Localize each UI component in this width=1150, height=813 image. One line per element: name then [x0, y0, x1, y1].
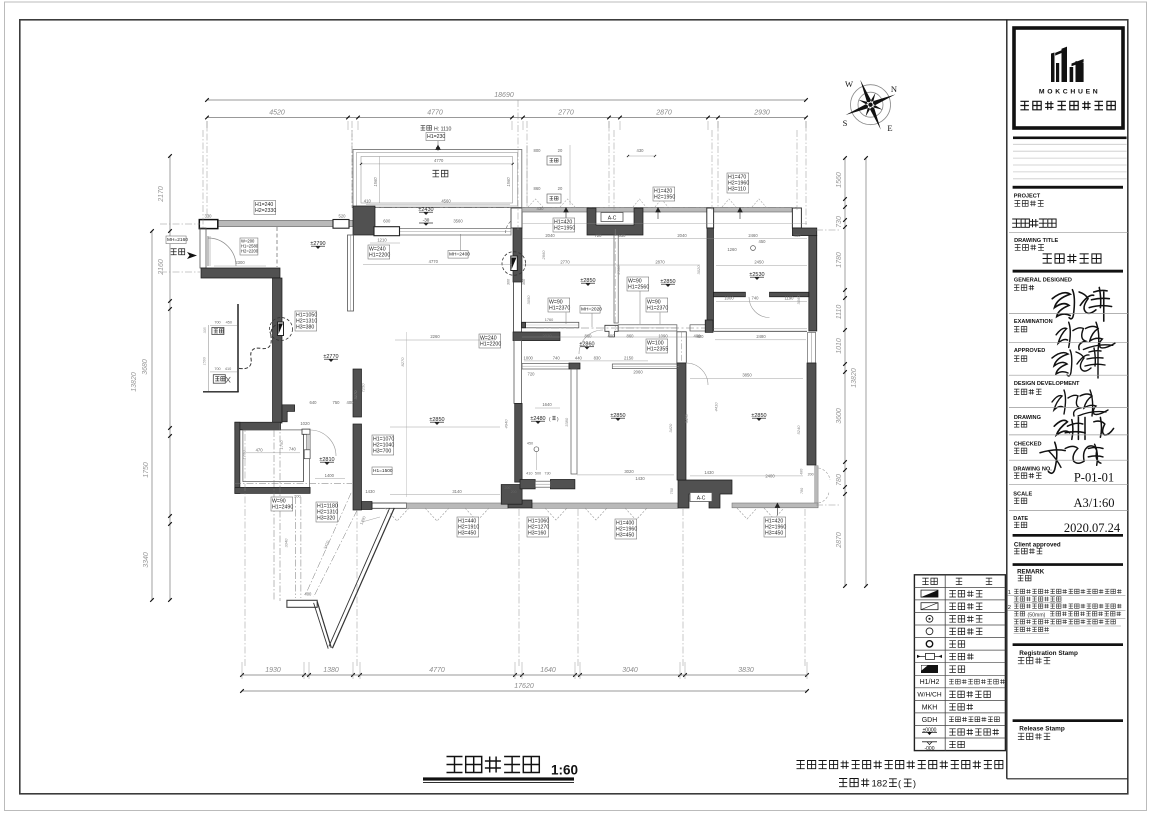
svg-text:2020.07.24: 2020.07.24 — [1064, 521, 1121, 535]
svg-text:Registration Stamp: Registration Stamp — [1019, 650, 1078, 657]
svg-text:SCALE: SCALE — [1013, 492, 1032, 498]
svg-text:H3=110: H3=110 — [728, 187, 746, 193]
svg-text:W/H/CH: W/H/CH — [917, 692, 941, 699]
svg-text:480: 480 — [800, 469, 804, 475]
svg-text:H3=450: H3=450 — [458, 531, 476, 537]
svg-text:3170: 3170 — [353, 390, 358, 400]
svg-text:3600: 3600 — [836, 408, 843, 424]
svg-text:305: 305 — [203, 327, 207, 333]
svg-text:2870: 2870 — [655, 260, 665, 265]
svg-text:2770: 2770 — [560, 260, 570, 265]
svg-text:700: 700 — [214, 321, 220, 325]
svg-text:3050: 3050 — [526, 295, 531, 305]
svg-text:200: 200 — [504, 486, 510, 490]
svg-text:3140: 3140 — [452, 489, 462, 494]
svg-text:EXAMINATION: EXAMINATION — [1014, 319, 1053, 325]
svg-text:20: 20 — [558, 186, 563, 191]
svg-text:3020: 3020 — [624, 469, 634, 474]
svg-text:Release Stamp: Release Stamp — [1019, 726, 1065, 733]
svg-text:740: 740 — [289, 447, 297, 452]
svg-text:H2=1950: H2=1950 — [554, 226, 575, 232]
svg-text:3040: 3040 — [622, 667, 638, 674]
svg-text:H3=320: H3=320 — [317, 516, 335, 522]
svg-text:MH=2160: MH=2160 — [167, 237, 188, 243]
svg-text:18690: 18690 — [494, 92, 514, 99]
svg-text:2: 2 — [1008, 605, 1011, 611]
svg-text:1380: 1380 — [323, 667, 339, 674]
svg-text:450: 450 — [759, 239, 767, 244]
svg-text:3340: 3340 — [284, 538, 289, 548]
svg-text:630: 630 — [619, 233, 627, 238]
svg-text:E: E — [887, 123, 892, 133]
svg-text:1750: 1750 — [279, 440, 284, 450]
svg-text:2160: 2160 — [158, 259, 165, 276]
svg-text:740: 740 — [553, 356, 561, 361]
svg-text:1210: 1210 — [377, 238, 387, 243]
svg-text:200: 200 — [808, 472, 814, 476]
svg-text:4520: 4520 — [269, 110, 285, 117]
svg-text:PROJECT: PROJECT — [1014, 194, 1041, 200]
svg-text:1000: 1000 — [724, 296, 734, 301]
svg-text:4770: 4770 — [427, 110, 443, 117]
svg-text:H2=2330: H2=2330 — [255, 208, 276, 214]
svg-text:300: 300 — [507, 278, 511, 285]
svg-text:H1=2355: H1=2355 — [647, 347, 668, 353]
svg-text:2060: 2060 — [633, 370, 643, 375]
svg-text:430: 430 — [537, 206, 545, 211]
svg-text:MH=2400: MH=2400 — [449, 252, 470, 258]
svg-text:2560: 2560 — [616, 265, 621, 276]
svg-text:DRAWING NO.: DRAWING NO. — [1013, 466, 1052, 472]
svg-text:1430: 1430 — [635, 476, 645, 481]
svg-text:1640: 1640 — [542, 402, 552, 407]
svg-text:2040: 2040 — [677, 233, 687, 238]
svg-text:1560: 1560 — [373, 177, 378, 187]
svg-text:2770: 2770 — [557, 110, 574, 117]
svg-text:640: 640 — [310, 400, 318, 405]
svg-text:H1=2560: H1=2560 — [628, 285, 649, 291]
svg-text:P-01-01: P-01-01 — [1074, 471, 1114, 485]
svg-text:17620: 17620 — [514, 683, 534, 690]
svg-text:1000: 1000 — [524, 356, 534, 361]
svg-text:H1=2490: H1=2490 — [272, 505, 293, 511]
svg-text:3020: 3020 — [696, 265, 701, 275]
svg-text:780: 780 — [836, 474, 843, 486]
svg-text:H3=450: H3=450 — [616, 533, 634, 539]
svg-text:4770: 4770 — [434, 158, 444, 163]
svg-text:REMARK: REMARK — [1017, 568, 1045, 575]
svg-text:2930: 2930 — [753, 110, 770, 117]
svg-text:H1=230: H1=230 — [427, 134, 445, 140]
svg-text:W: W — [845, 79, 853, 89]
svg-text:7250: 7250 — [361, 383, 366, 393]
svg-text:2450: 2450 — [754, 260, 764, 265]
svg-text:APPROVED: APPROVED — [1014, 348, 1045, 354]
svg-text:MKH: MKH — [922, 704, 938, 711]
svg-text:3340: 3340 — [143, 552, 150, 568]
svg-text:2300: 2300 — [235, 260, 245, 265]
svg-text:A-C: A-C — [697, 496, 706, 502]
svg-text:330: 330 — [205, 214, 213, 219]
svg-text:H1=2200: H1=2200 — [369, 253, 390, 259]
svg-text:MH=2020: MH=2020 — [581, 307, 602, 313]
svg-text:1430: 1430 — [365, 489, 375, 494]
svg-text:470: 470 — [256, 447, 264, 452]
svg-text:860: 860 — [534, 186, 542, 191]
svg-text:3560: 3560 — [453, 219, 463, 224]
svg-text:1930: 1930 — [265, 667, 281, 674]
svg-text:750: 750 — [670, 487, 674, 494]
svg-text:3420: 3420 — [668, 423, 673, 433]
svg-text:GENERAL DESIGNED: GENERAL DESIGNED — [1014, 278, 1072, 284]
svg-text:GDH: GDH — [922, 717, 938, 724]
svg-text:H2=1950: H2=1950 — [654, 195, 675, 201]
svg-text:430: 430 — [637, 148, 645, 153]
svg-text:1760: 1760 — [242, 450, 247, 460]
svg-text:720: 720 — [595, 233, 603, 238]
svg-text:410: 410 — [225, 367, 231, 371]
svg-text:(50mm): (50mm) — [1028, 612, 1046, 618]
svg-text:720: 720 — [528, 372, 536, 377]
svg-text:1:60: 1:60 — [551, 763, 578, 778]
svg-text:A3/1:60: A3/1:60 — [1074, 496, 1115, 510]
svg-text:410: 410 — [526, 472, 532, 476]
svg-text:1640: 1640 — [540, 667, 556, 674]
svg-text:2170: 2170 — [158, 186, 165, 203]
svg-text:700: 700 — [214, 367, 220, 371]
svg-text:H1=1500: H1=1500 — [373, 468, 393, 474]
svg-text:400: 400 — [608, 334, 616, 339]
svg-text:1780: 1780 — [836, 252, 843, 268]
svg-text:DRAWING TITLE: DRAWING TITLE — [1014, 238, 1058, 244]
svg-text:(: ( — [898, 779, 901, 789]
svg-text:3680: 3680 — [142, 359, 149, 375]
svg-text:1560: 1560 — [203, 357, 207, 365]
svg-text:450: 450 — [527, 442, 533, 446]
svg-text:A-C: A-C — [608, 216, 617, 222]
svg-text:400: 400 — [304, 591, 312, 596]
svg-text:2870: 2870 — [836, 532, 843, 549]
svg-text:-30: -30 — [423, 218, 430, 223]
svg-text:2150: 2150 — [624, 356, 634, 361]
svg-text:730: 730 — [544, 472, 550, 476]
svg-text:Client approved: Client approved — [1014, 541, 1061, 548]
svg-text:800: 800 — [534, 148, 542, 153]
svg-text:): ) — [913, 779, 916, 789]
svg-text:500: 500 — [535, 472, 541, 476]
svg-text:13820: 13820 — [131, 372, 138, 392]
svg-text:1430: 1430 — [704, 470, 714, 475]
svg-text:780: 780 — [800, 488, 804, 494]
svg-text:H1=2370: H1=2370 — [647, 306, 668, 312]
svg-text:730: 730 — [836, 216, 843, 228]
svg-text:200: 200 — [294, 494, 300, 498]
svg-text:1090: 1090 — [658, 334, 668, 339]
svg-text:H: 1110: H: 1110 — [434, 127, 452, 133]
svg-text:1190: 1190 — [784, 296, 794, 301]
svg-text:400: 400 — [697, 334, 705, 339]
svg-text:1110: 1110 — [836, 305, 843, 320]
svg-text:H3=160: H3=160 — [528, 531, 546, 537]
svg-text:3470: 3470 — [684, 414, 689, 424]
svg-text:M O K C H U E N: M O K C H U E N — [1039, 89, 1098, 96]
svg-text:3850: 3850 — [742, 373, 752, 378]
svg-text:410: 410 — [364, 199, 372, 204]
svg-text:1020: 1020 — [300, 421, 310, 426]
svg-text:1760: 1760 — [545, 318, 553, 322]
svg-text:400: 400 — [347, 400, 355, 405]
svg-text:N: N — [891, 84, 897, 94]
svg-text:450: 450 — [226, 321, 232, 325]
svg-text:H3=380: H3=380 — [296, 325, 314, 331]
svg-text:DESIGN DEVELOPMENT: DESIGN DEVELOPMENT — [1014, 381, 1080, 387]
svg-text:H1=2370: H1=2370 — [549, 306, 570, 312]
svg-text:H1/H2: H1/H2 — [920, 679, 940, 686]
svg-text:2870: 2870 — [655, 110, 672, 117]
svg-text:1560: 1560 — [836, 172, 843, 188]
svg-text:1260: 1260 — [727, 247, 737, 252]
svg-text:2260: 2260 — [430, 334, 440, 339]
svg-text:4770: 4770 — [429, 259, 439, 264]
svg-text:1750: 1750 — [143, 462, 150, 478]
svg-text:CHECKED: CHECKED — [1014, 442, 1042, 448]
svg-text:860: 860 — [627, 334, 635, 339]
svg-text:1: 1 — [1008, 590, 1011, 596]
svg-text:DATE: DATE — [1013, 516, 1028, 522]
svg-text:4770: 4770 — [429, 667, 445, 674]
svg-text:2460: 2460 — [748, 233, 758, 238]
svg-text:600: 600 — [383, 219, 391, 224]
svg-text:2480: 2480 — [756, 334, 766, 339]
svg-text:740: 740 — [752, 296, 760, 301]
svg-text:750: 750 — [333, 400, 341, 405]
svg-text:830: 830 — [594, 356, 602, 361]
svg-text:8270: 8270 — [400, 357, 405, 367]
svg-text:1010: 1010 — [836, 338, 843, 354]
svg-text:4410: 4410 — [713, 402, 718, 412]
svg-text:20: 20 — [558, 148, 563, 153]
svg-text:1560: 1560 — [506, 177, 511, 187]
svg-text:-000: -000 — [924, 746, 934, 752]
svg-text:S: S — [843, 118, 848, 128]
svg-text:182: 182 — [872, 779, 888, 790]
svg-text:H2=2200: H2=2200 — [241, 249, 259, 254]
svg-text:DRAWING: DRAWING — [1014, 415, 1041, 421]
svg-text:1400: 1400 — [325, 473, 335, 478]
svg-text:13820: 13820 — [851, 368, 858, 388]
svg-text:200: 200 — [511, 490, 517, 494]
svg-text:2020: 2020 — [542, 334, 552, 339]
svg-text:2860: 2860 — [541, 250, 546, 261]
svg-text:H1=2200: H1=2200 — [480, 342, 501, 348]
svg-text:3380: 3380 — [564, 417, 569, 427]
svg-text:520: 520 — [339, 214, 347, 219]
svg-text:3060: 3060 — [796, 295, 801, 305]
svg-text:H3=450: H3=450 — [765, 531, 783, 537]
svg-text:3830: 3830 — [738, 667, 754, 674]
svg-text:5240: 5240 — [796, 425, 801, 435]
svg-text:H3=700: H3=700 — [373, 449, 391, 455]
svg-text:2040: 2040 — [545, 233, 555, 238]
svg-text:440: 440 — [575, 356, 583, 361]
svg-text:4940: 4940 — [504, 419, 509, 429]
svg-text:300: 300 — [522, 278, 526, 285]
svg-text:450: 450 — [794, 233, 802, 238]
svg-text:4560: 4560 — [441, 199, 451, 204]
